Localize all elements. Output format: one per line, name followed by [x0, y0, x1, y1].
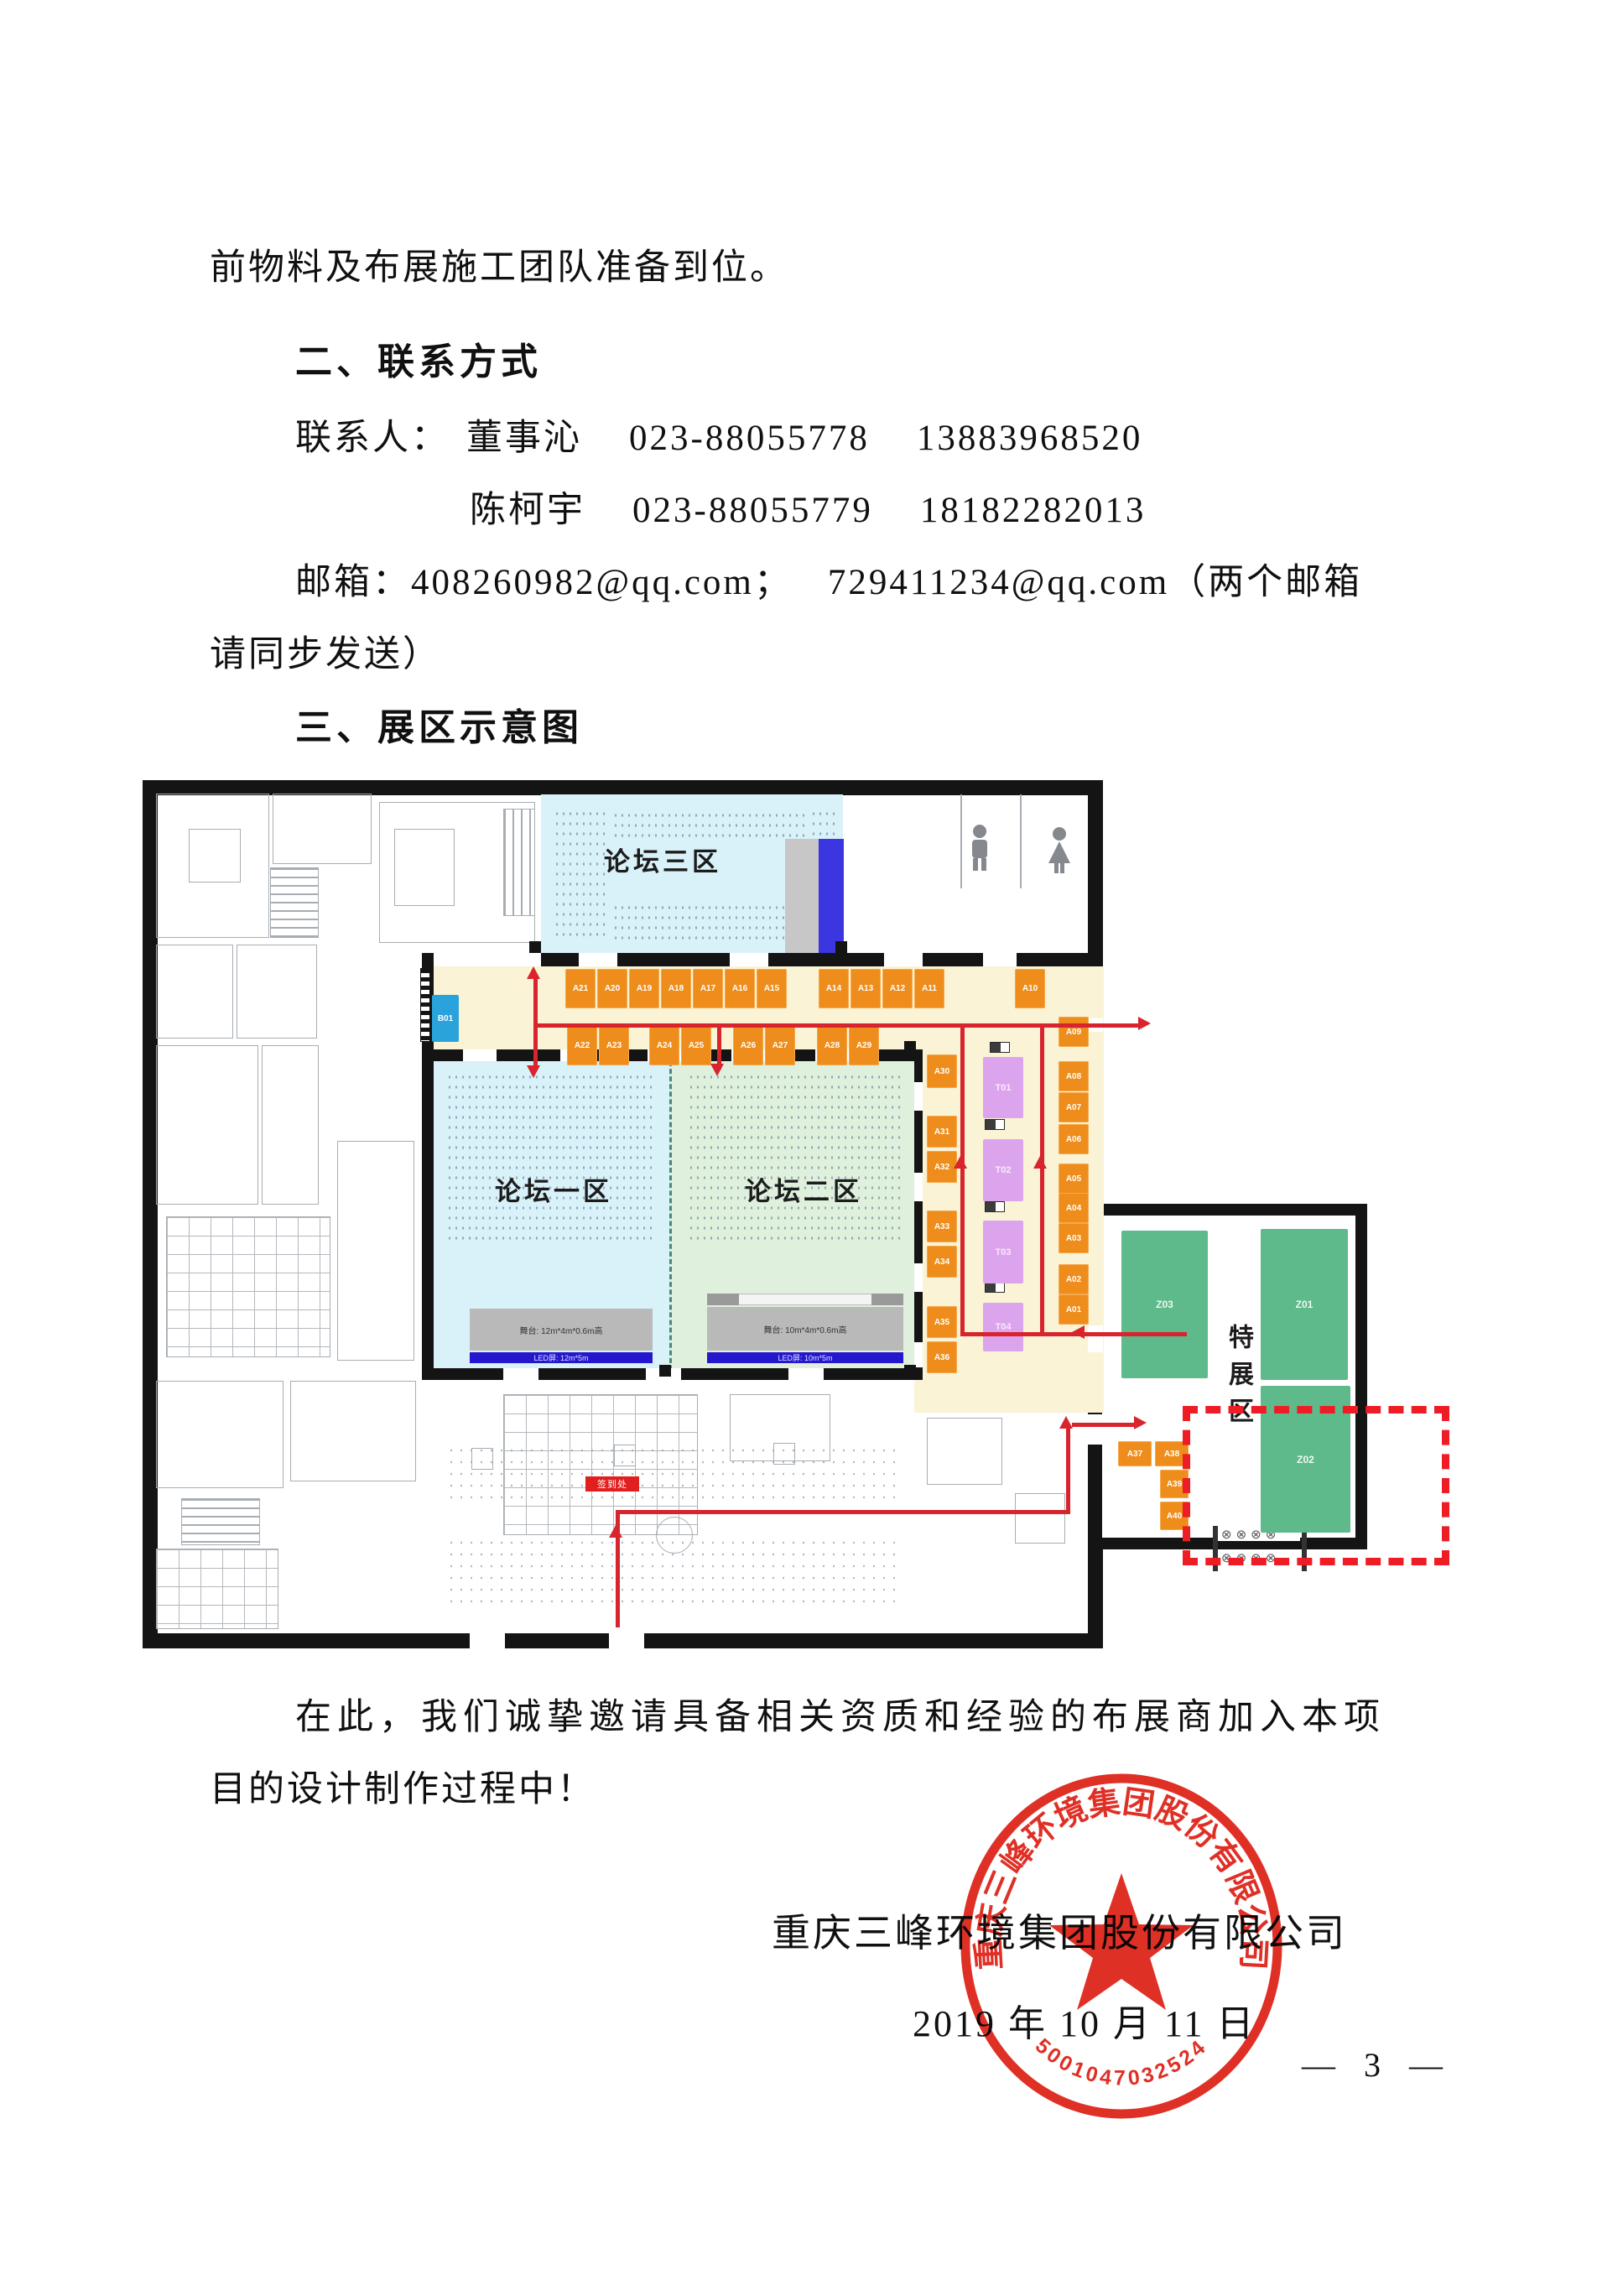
booth-T03: T03 [983, 1221, 1023, 1283]
booth-B01: B01 [432, 995, 459, 1042]
booth-A33: A33 [927, 1210, 957, 1242]
forum1-stage: 舞台: 12m*4m*0.6m高 [470, 1309, 653, 1351]
booth-T01: T01 [983, 1057, 1023, 1118]
booth-A37: A37 [1118, 1441, 1152, 1466]
booth-A02: A02 [1059, 1264, 1089, 1294]
booth-A29: A29 [849, 1026, 879, 1065]
booth-A31: A31 [927, 1116, 957, 1148]
highlight-dashed-box [1183, 1406, 1449, 1565]
svg-text:5001047032524: 5001047032524 [1031, 2034, 1213, 2090]
company-seal: 重庆三峰环境集团股份有限公司 5001047032524 [956, 1766, 1287, 2127]
contact2-tel: 023-88055779 [632, 491, 873, 530]
booth-A09: A09 [1059, 1017, 1089, 1047]
booth-A23: A23 [599, 1026, 629, 1065]
exhibition-floor-plan: 舞台: 12m*4m*0.6m高 LED屏: 12m*5m 舞台: 10m*4m… [143, 780, 1455, 1665]
booth-A17: A17 [693, 969, 723, 1008]
contact1-name: 董事沁 [466, 419, 582, 458]
booth-A19: A19 [629, 969, 659, 1008]
booth-A06: A06 [1059, 1124, 1089, 1154]
booth-A34: A34 [927, 1246, 957, 1278]
contact2-name: 陈柯宇 [470, 491, 585, 530]
booth-A36: A36 [927, 1341, 957, 1373]
booth-A10: A10 [1015, 969, 1045, 1008]
booth-A18: A18 [661, 969, 691, 1008]
booth-A14: A14 [819, 969, 849, 1008]
female-restroom-icon [1047, 826, 1072, 875]
booth-A22: A22 [567, 1026, 597, 1065]
section2-heading: 二、联系方式 [295, 331, 542, 385]
booth-A27: A27 [765, 1026, 795, 1065]
booth-A12: A12 [882, 969, 913, 1008]
contact1-tel: 023-88055778 [629, 419, 870, 458]
male-restroom-icon [969, 824, 991, 872]
booth-T04: T04 [983, 1303, 1023, 1351]
forum2-led: LED屏: 10m*5m [707, 1352, 903, 1363]
contact-label: 联系人： [295, 419, 450, 458]
booth-A25: A25 [681, 1026, 711, 1065]
email-line-2: 请同步发送） [210, 625, 441, 677]
booth-A01: A01 [1059, 1294, 1089, 1325]
booth-A28: A28 [817, 1026, 847, 1065]
seal-serial: 5001047032524 [1031, 2034, 1213, 2090]
seal-star [1049, 1873, 1194, 2010]
booth-A32: A32 [927, 1151, 957, 1183]
booth-A35: A35 [927, 1306, 957, 1338]
booth-A16: A16 [725, 969, 755, 1008]
booth-A30: A30 [927, 1054, 957, 1088]
booth-A26: A26 [733, 1026, 763, 1065]
booth-A04: A04 [1059, 1193, 1089, 1223]
forum2-label: 论坛二区 [745, 1170, 862, 1208]
email-2: 729411234@qq.com（两个邮箱 [828, 563, 1362, 602]
checkin-label: 签到处 [585, 1476, 639, 1492]
forum1-led: LED屏: 12m*5m [470, 1352, 653, 1363]
booth-Z03: Z03 [1121, 1231, 1208, 1378]
booth-A07: A07 [1059, 1092, 1089, 1122]
forum2-stage: 舞台: 10m*4m*0.6m高 [707, 1307, 903, 1351]
booth-A08: A08 [1059, 1061, 1089, 1091]
booth-T02: T02 [983, 1139, 1023, 1201]
forum3-label: 论坛三区 [604, 841, 721, 878]
booth-A11: A11 [914, 969, 944, 1008]
contact-line-1: 联系人：董事沁023-8805577813883968520 [295, 409, 1142, 461]
closing-line-2: 目的设计制作过程中！ [210, 1760, 596, 1812]
contact-line-2: 陈柯宇023-8805577918182282013 [470, 481, 1146, 533]
booth-A03: A03 [1059, 1223, 1089, 1253]
paragraph-top: 前物料及布展施工团队准备到位。 [210, 238, 788, 290]
booth-A05: A05 [1059, 1164, 1089, 1194]
email-1: 邮箱：408260982@qq.com； [295, 563, 793, 602]
closing-line-1: 在此，我们诚挚邀请具备相关资质和经验的布展商加入本项 [295, 1688, 1386, 1740]
forum1-label: 论坛一区 [495, 1170, 612, 1208]
booth-A15: A15 [757, 969, 787, 1008]
section3-heading: 三、展区示意图 [295, 697, 583, 751]
page-number: — 3 — [1302, 2045, 1453, 2085]
contact1-mobile: 13883968520 [917, 419, 1143, 458]
barrier-strip [420, 968, 430, 1042]
booth-A13: A13 [851, 969, 881, 1008]
email-line: 邮箱：408260982@qq.com；729411234@qq.com（两个邮… [295, 553, 1362, 605]
booth-A21: A21 [565, 969, 596, 1008]
info-board-blue [819, 839, 844, 953]
booth-Z01: Z01 [1261, 1229, 1348, 1380]
contact2-mobile: 18182282013 [920, 491, 1147, 530]
forum-divider [669, 1061, 672, 1378]
info-board-gray [785, 839, 819, 953]
booth-A24: A24 [649, 1026, 679, 1065]
booth-A20: A20 [597, 969, 627, 1008]
